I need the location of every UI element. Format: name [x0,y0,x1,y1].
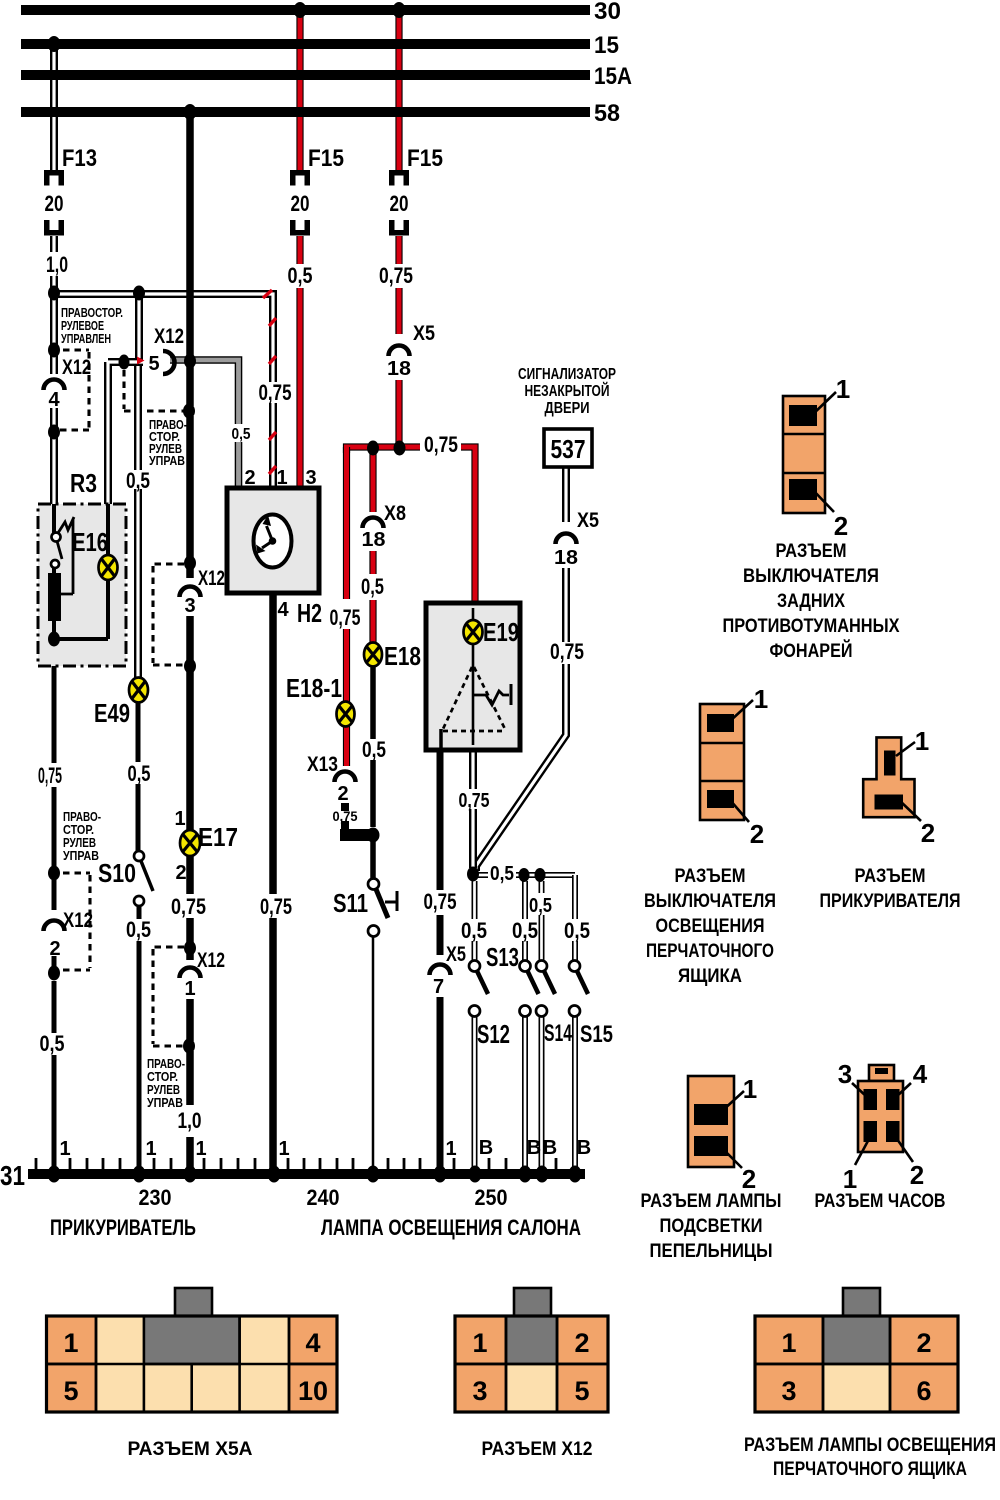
svg-text:1: 1 [276,467,287,489]
svg-text:СИГНАЛИЗАТОР: СИГНАЛИЗАТОР [518,366,616,383]
svg-text:ВЫКЛЮЧАТЕЛЯ: ВЫКЛЮЧАТЕЛЯ [743,566,879,587]
svg-text:S13: S13 [486,942,519,972]
svg-text:2: 2 [175,862,186,884]
svg-text:E18-1: E18-1 [286,673,342,703]
svg-text:X13: X13 [307,753,338,776]
svg-text:0,5: 0,5 [362,737,386,762]
svg-text:3: 3 [184,595,195,617]
svg-text:1: 1 [145,1138,156,1160]
svg-text:УПРАВ: УПРАВ [147,1095,183,1110]
svg-text:1: 1 [472,1328,487,1358]
svg-text:18: 18 [387,358,411,380]
svg-text:0,5: 0,5 [564,918,590,943]
svg-text:0,75: 0,75 [171,894,206,919]
svg-text:1: 1 [63,1328,78,1358]
svg-text:0,75: 0,75 [459,790,490,812]
svg-text:0,75: 0,75 [379,263,413,288]
svg-text:20: 20 [45,191,64,216]
svg-text:РАЗЪЕМ ЛАМПЫ ОСВЕЩЕНИЯ: РАЗЪЕМ ЛАМПЫ ОСВЕЩЕНИЯ [744,1435,996,1456]
svg-text:ОСВЕЩЕНИЯ: ОСВЕЩЕНИЯ [656,916,765,937]
svg-text:РАЗЪЕМ: РАЗЪЕМ [675,866,746,887]
svg-text:1: 1 [59,1138,70,1160]
svg-text:ПЕРЧАТОЧНОГО ЯЩИКА: ПЕРЧАТОЧНОГО ЯЩИКА [773,1459,967,1480]
svg-text:2: 2 [921,818,935,848]
svg-text:1: 1 [278,1138,289,1160]
svg-text:537: 537 [551,434,586,464]
svg-text:РАЗЪЕМ X5A: РАЗЪЕМ X5A [128,1439,253,1460]
svg-text:X12: X12 [198,567,225,590]
svg-text:20: 20 [390,191,409,216]
svg-text:ПРОТИВОТУМАННЫХ: ПРОТИВОТУМАННЫХ [723,616,900,637]
svg-text:1: 1 [195,1138,206,1160]
svg-text:ДВЕРИ: ДВЕРИ [545,400,590,417]
svg-text:B: B [527,1137,541,1159]
svg-text:2: 2 [916,1328,931,1358]
svg-text:F15: F15 [308,145,344,172]
svg-text:5: 5 [148,353,159,375]
svg-text:4: 4 [48,389,60,411]
svg-text:0,5: 0,5 [529,895,552,917]
svg-text:ВЫКЛЮЧАТЕЛЯ: ВЫКЛЮЧАТЕЛЯ [644,891,776,912]
svg-text:S12: S12 [477,1019,510,1049]
svg-text:0,5: 0,5 [512,918,538,943]
svg-text:S14: S14 [544,1020,572,1047]
svg-text:1: 1 [915,726,929,756]
svg-text:10: 10 [298,1376,328,1406]
svg-text:H2: H2 [297,598,322,628]
svg-text:РАЗЪЕМ: РАЗЪЕМ [855,866,926,887]
svg-text:2: 2 [742,1164,756,1194]
svg-text:2: 2 [244,467,255,489]
svg-text:0,75: 0,75 [260,894,292,919]
svg-text:20: 20 [291,191,310,216]
svg-text:РАЗЪЕМ ЛАМПЫ: РАЗЪЕМ ЛАМПЫ [641,1191,782,1212]
svg-text:1: 1 [781,1328,796,1358]
svg-text:X5: X5 [446,943,466,966]
svg-text:E49: E49 [94,698,130,728]
svg-text:ПОДСВЕТКИ: ПОДСВЕТКИ [660,1216,763,1237]
svg-text:1,0: 1,0 [178,1108,202,1133]
svg-text:0,75: 0,75 [38,763,62,788]
svg-text:ФОНАРЕЙ: ФОНАРЕЙ [770,640,853,662]
svg-text:0,75: 0,75 [333,808,358,824]
svg-text:1,0: 1,0 [46,252,68,277]
svg-text:250: 250 [475,1185,508,1210]
svg-text:15: 15 [594,32,619,59]
svg-text:2: 2 [834,511,848,541]
svg-text:0,5: 0,5 [461,918,487,943]
svg-text:5: 5 [574,1376,589,1406]
svg-text:0,5: 0,5 [232,426,251,443]
svg-text:X12: X12 [154,325,184,348]
svg-text:2: 2 [910,1160,924,1190]
svg-text:ПРИКУРИВАТЕЛЯ: ПРИКУРИВАТЕЛЯ [820,891,961,912]
svg-text:X5: X5 [577,509,599,532]
svg-text:УПРАВ: УПРАВ [149,453,185,468]
svg-text:0,75: 0,75 [550,639,584,664]
svg-text:S11: S11 [333,888,368,918]
svg-text:0,75: 0,75 [330,605,361,630]
svg-text:4: 4 [305,1328,320,1358]
svg-text:5: 5 [63,1376,78,1406]
svg-text:30: 30 [594,0,621,25]
svg-text:1: 1 [743,1074,757,1104]
svg-text:0,5: 0,5 [128,761,151,786]
svg-text:F13: F13 [62,145,97,172]
svg-text:18: 18 [362,529,386,551]
svg-text:F15: F15 [407,145,443,172]
svg-text:ПРИКУРИВАТЕЛЬ: ПРИКУРИВАТЕЛЬ [50,1215,196,1240]
svg-text:ЗАДНИХ: ЗАДНИХ [777,591,845,612]
svg-text:E16: E16 [72,527,108,557]
svg-text:1: 1 [843,1164,857,1194]
svg-text:B: B [543,1137,557,1159]
svg-text:B: B [577,1137,591,1159]
svg-text:ПЕРЧАТОЧНОГО: ПЕРЧАТОЧНОГО [646,941,774,962]
svg-text:X12: X12 [197,949,225,972]
svg-text:НЕЗАКРЫТОЙ: НЕЗАКРЫТОЙ [525,381,610,400]
svg-text:1: 1 [445,1138,456,1160]
svg-text:31: 31 [0,1160,25,1191]
svg-text:0,5: 0,5 [126,917,151,942]
svg-text:0,75: 0,75 [424,432,458,457]
svg-text:РАЗЪЕМ: РАЗЪЕМ [776,541,847,562]
svg-text:58: 58 [594,100,620,127]
svg-text:1: 1 [836,374,850,404]
svg-text:1: 1 [184,978,195,1000]
svg-text:3: 3 [305,467,316,489]
svg-text:15A: 15A [594,63,632,90]
svg-text:ПЕПЕЛЬНИЦЫ: ПЕПЕЛЬНИЦЫ [650,1241,773,1262]
svg-text:1: 1 [174,808,185,830]
svg-text:240: 240 [307,1185,340,1210]
svg-text:X5: X5 [413,322,435,345]
svg-text:0,75: 0,75 [259,380,292,405]
svg-text:0,5: 0,5 [288,263,313,288]
svg-text:S10: S10 [98,858,136,888]
svg-text:0,5: 0,5 [361,574,384,599]
svg-text:0,5: 0,5 [490,863,514,885]
svg-text:2: 2 [49,938,60,960]
svg-text:0,5: 0,5 [126,468,150,493]
svg-text:3: 3 [838,1059,852,1089]
svg-text:4: 4 [913,1059,928,1089]
svg-text:B: B [479,1137,493,1159]
svg-text:2: 2 [750,819,764,849]
svg-text:E19: E19 [483,617,519,647]
svg-text:18: 18 [554,547,578,569]
svg-text:X12: X12 [62,356,91,379]
svg-text:ЯЩИКА: ЯЩИКА [678,966,742,987]
svg-text:УПРАВ: УПРАВ [63,848,99,863]
svg-text:230: 230 [139,1185,172,1210]
svg-text:УПРАВЛЕН: УПРАВЛЕН [61,331,111,346]
svg-text:6: 6 [916,1376,931,1406]
svg-text:0,5: 0,5 [40,1031,65,1056]
svg-text:ЛАМПА ОСВЕЩЕНИЯ САЛОНА: ЛАМПА ОСВЕЩЕНИЯ САЛОНА [321,1215,581,1240]
svg-text:X12: X12 [63,909,93,932]
svg-text:1: 1 [754,684,768,714]
svg-text:E18: E18 [384,641,421,671]
svg-text:4: 4 [277,599,289,621]
svg-text:2: 2 [574,1328,589,1358]
svg-text:E17: E17 [198,822,238,852]
svg-text:7: 7 [433,976,444,998]
svg-text:R3: R3 [70,468,97,498]
svg-text:2: 2 [337,783,348,805]
svg-text:3: 3 [781,1376,796,1406]
svg-text:3: 3 [472,1376,487,1406]
svg-text:0,75: 0,75 [424,889,457,914]
svg-text:S15: S15 [580,1021,613,1048]
svg-text:X8: X8 [384,502,406,525]
svg-text:РАЗЪЕМ X12: РАЗЪЕМ X12 [482,1439,593,1460]
svg-text:РАЗЪЕМ ЧАСОВ: РАЗЪЕМ ЧАСОВ [815,1191,946,1212]
